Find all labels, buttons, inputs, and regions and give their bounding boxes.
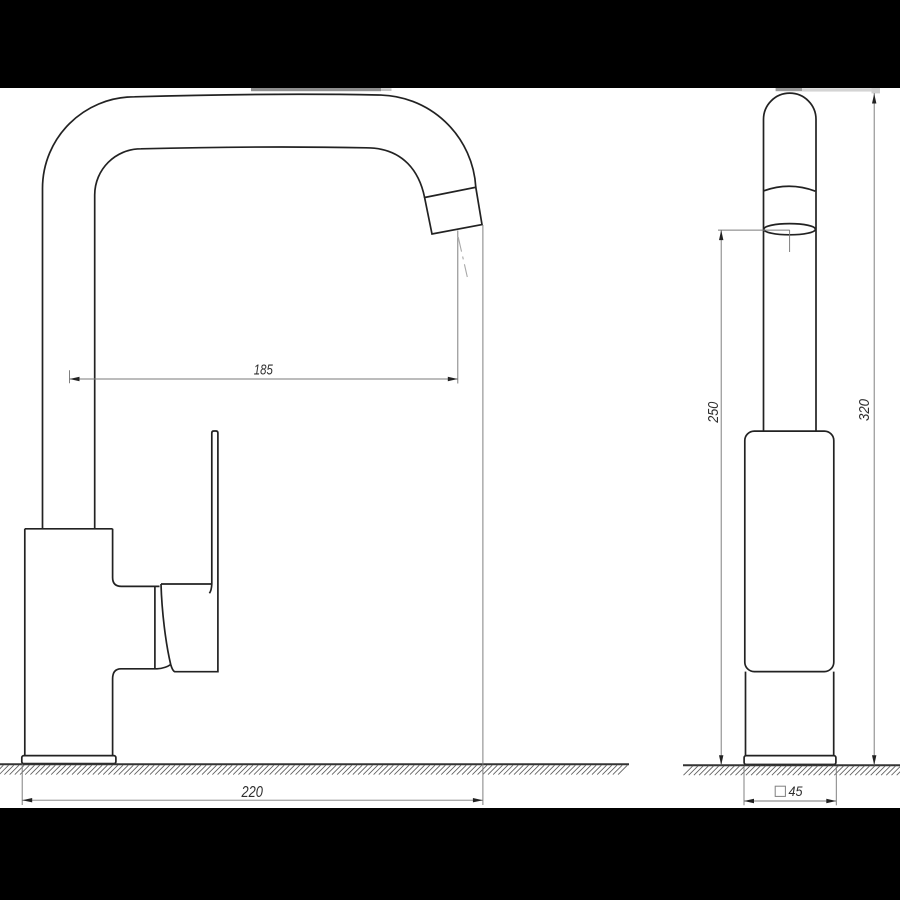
svg-text:185: 185	[254, 361, 273, 378]
svg-text:45: 45	[789, 784, 803, 800]
svg-text:220: 220	[241, 784, 263, 801]
svg-text:320: 320	[856, 399, 873, 421]
svg-text:250: 250	[705, 401, 722, 423]
